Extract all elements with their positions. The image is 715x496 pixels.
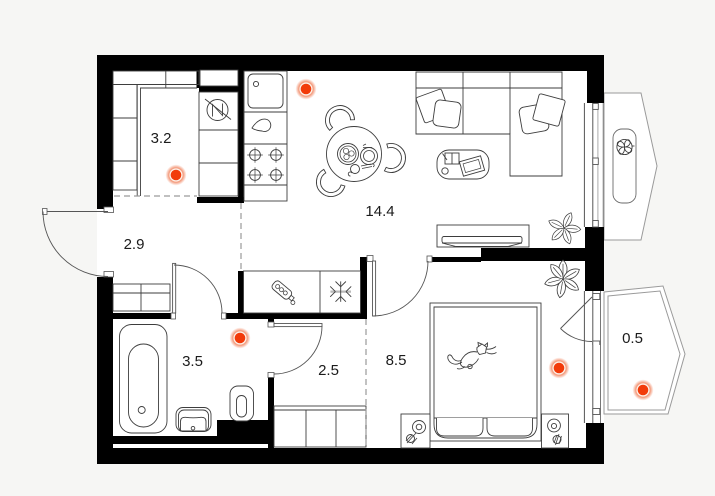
svg-text:2.5: 2.5 — [318, 362, 339, 379]
svg-text:3.5: 3.5 — [182, 353, 203, 370]
svg-text:0.5: 0.5 — [622, 330, 643, 347]
svg-text:14.4: 14.4 — [365, 203, 394, 220]
svg-text:2.9: 2.9 — [124, 236, 145, 253]
svg-text:3.2: 3.2 — [151, 130, 172, 147]
svg-text:8.5: 8.5 — [386, 352, 407, 369]
